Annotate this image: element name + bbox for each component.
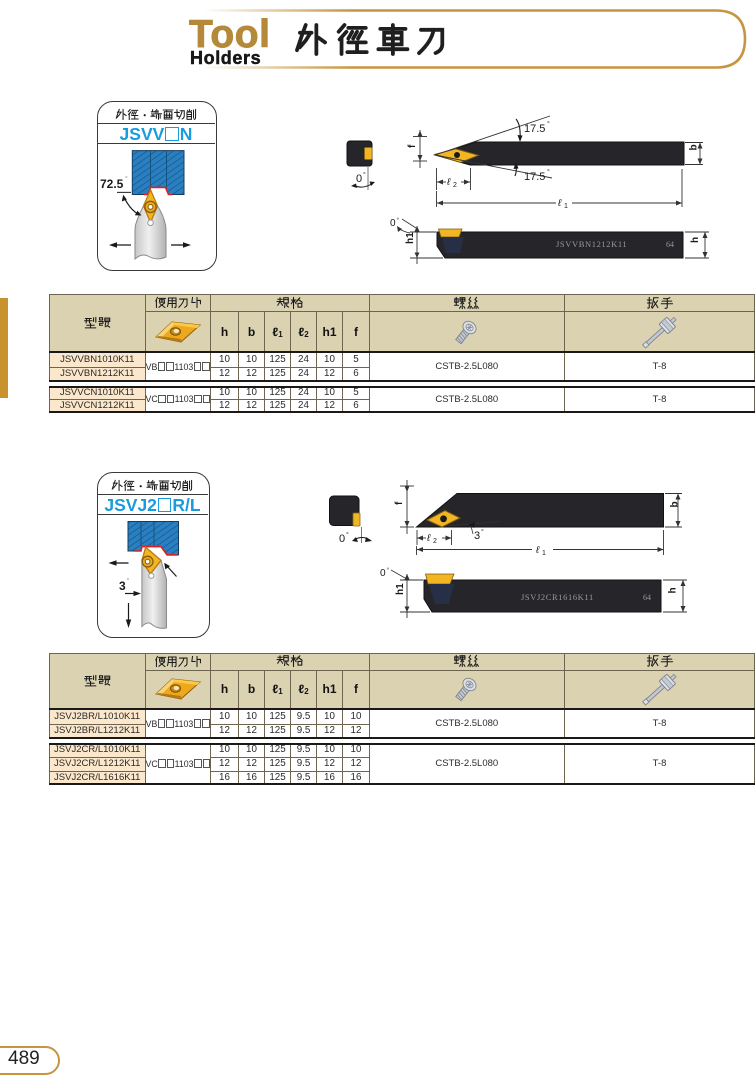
svg-text:72.5: 72.5 <box>100 177 124 191</box>
svg-text:°: ° <box>547 168 550 176</box>
svg-text:1: 1 <box>564 203 568 210</box>
svg-text:°: ° <box>125 175 128 183</box>
svg-text:°: ° <box>387 566 390 574</box>
svg-text:h: h <box>690 237 701 243</box>
svg-text:f: f <box>407 144 418 148</box>
svg-text:b: b <box>689 144 700 150</box>
svg-text:h: h <box>668 587 679 593</box>
svg-text:ℓ: ℓ <box>557 198 562 209</box>
svg-text:ℓ: ℓ <box>446 177 451 188</box>
svg-text:64: 64 <box>643 593 651 602</box>
svg-text:°: ° <box>547 120 550 128</box>
svg-text:h1: h1 <box>395 583 406 595</box>
svg-text:f: f <box>394 501 405 505</box>
svg-text:2: 2 <box>433 538 437 545</box>
svg-text:0: 0 <box>390 218 396 229</box>
svg-text:17.5: 17.5 <box>524 171 545 183</box>
svg-text:b: b <box>670 501 681 507</box>
svg-text:3: 3 <box>119 579 126 593</box>
svg-text:ℓ: ℓ <box>426 533 431 544</box>
svg-text:°: ° <box>481 528 484 536</box>
svg-text:°: ° <box>363 171 366 179</box>
svg-text:0: 0 <box>339 533 345 545</box>
svg-text:°: ° <box>127 577 130 585</box>
svg-text:°: ° <box>397 216 400 224</box>
svg-text:2: 2 <box>453 182 457 189</box>
svg-text:JSVJ2CR1616K11: JSVJ2CR1616K11 <box>521 592 594 602</box>
svg-text:1: 1 <box>542 550 546 557</box>
svg-text:°: ° <box>346 531 349 539</box>
svg-text:JSVVBN1212K11: JSVVBN1212K11 <box>556 239 627 249</box>
svg-text:ℓ: ℓ <box>535 545 540 556</box>
svg-text:17.5: 17.5 <box>524 123 545 135</box>
svg-text:3: 3 <box>474 530 480 542</box>
svg-text:0: 0 <box>356 173 362 185</box>
svg-text:64: 64 <box>666 240 674 249</box>
svg-text:0: 0 <box>380 568 386 579</box>
svg-text:h1: h1 <box>405 232 416 244</box>
